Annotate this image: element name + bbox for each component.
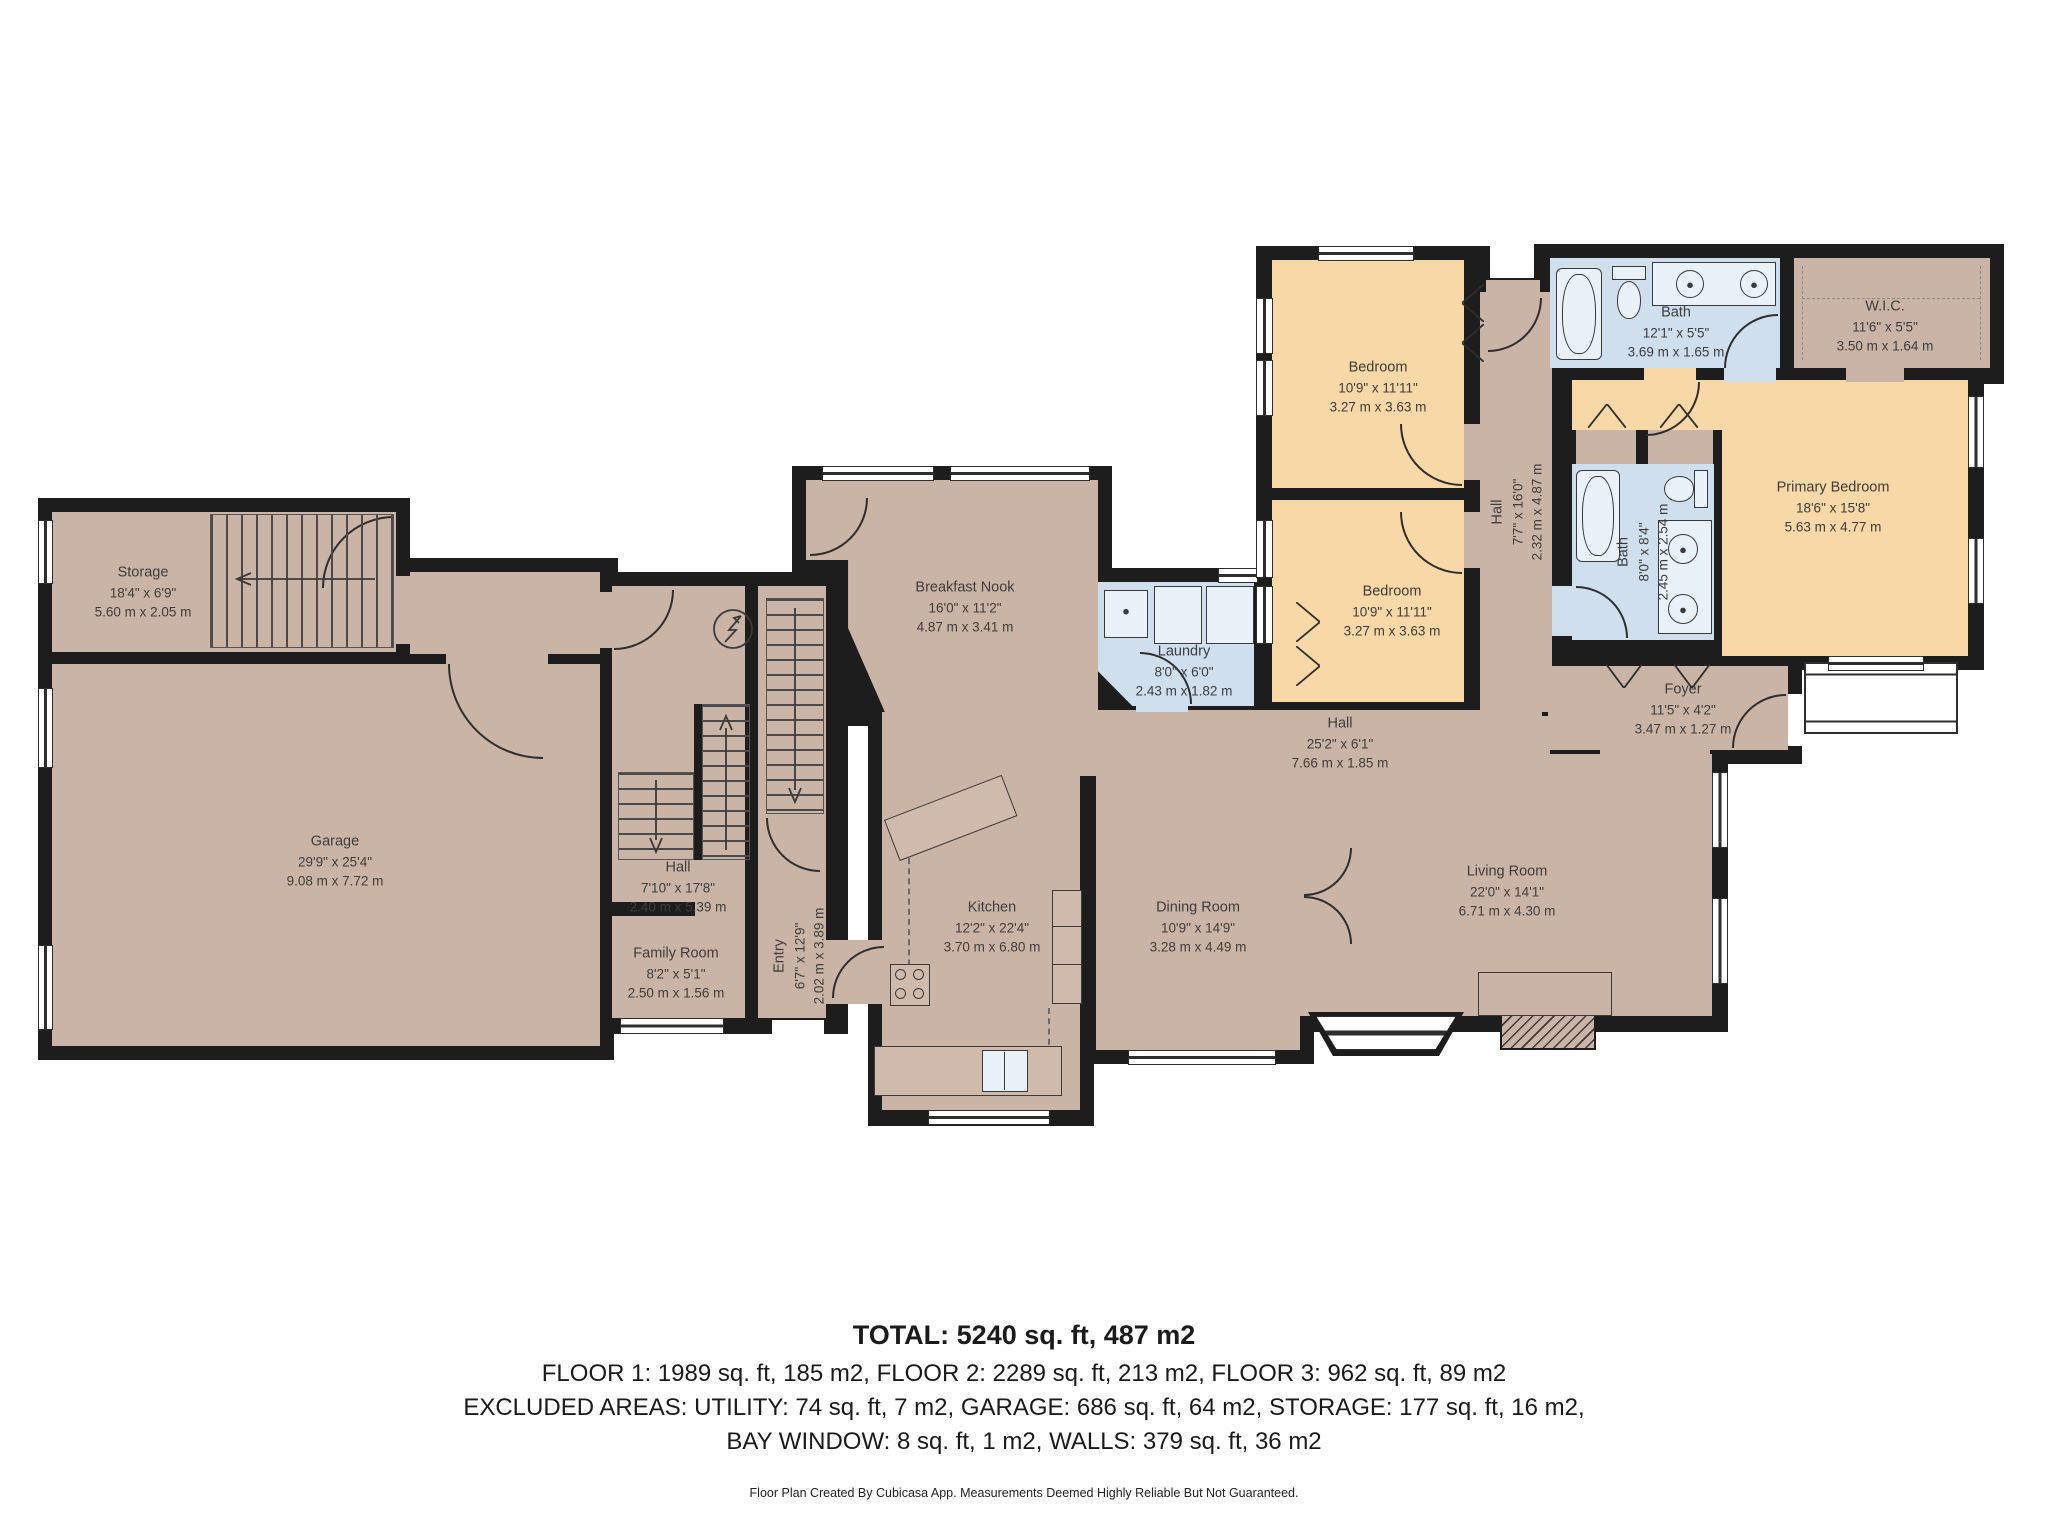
opening-kitchen-corridor bbox=[1066, 716, 1080, 770]
label-entry: Entry 6'7" x 12'9" 2.02 m x 3.89 m bbox=[771, 908, 828, 1005]
bathtub-primary bbox=[1576, 470, 1620, 562]
closet-chevron-primary-b bbox=[1660, 404, 1698, 428]
window-nook-top-2 bbox=[950, 466, 1090, 481]
area-summary: TOTAL: 5240 sq. ft, 487 m2 FLOOR 1: 1989… bbox=[0, 1320, 2048, 1462]
label-bath-main: Bath 12'1" x 5'5" 3.69 m x 1.65 m bbox=[1628, 304, 1725, 361]
fireplace-hearth bbox=[1478, 972, 1612, 1016]
window-bedroom1-left-2 bbox=[1256, 360, 1273, 416]
window-primary-right-2 bbox=[1968, 538, 1984, 604]
closet-chevron-bedroom2-b bbox=[1296, 646, 1320, 686]
label-bedroom-2: Bedroom 10'9" x 11'11" 3.27 m x 3.63 m bbox=[1344, 583, 1441, 640]
toilet-bowl-primary bbox=[1664, 476, 1694, 502]
opening-entry-exterior bbox=[772, 1020, 824, 1034]
opening-bedroom1-door bbox=[1464, 424, 1480, 480]
opening-foyer-living bbox=[1600, 748, 1710, 758]
label-storage: Storage 18'4" x 6'9" 5.60 m x 2.05 m bbox=[95, 564, 192, 621]
opening-bath-primary-door bbox=[1552, 586, 1574, 636]
laundry-sink bbox=[1104, 590, 1148, 638]
label-breakfast-nook: Breakfast Nook 16'0" x 11'2" 4.87 m x 3.… bbox=[915, 579, 1014, 636]
window-kitchen-bottom bbox=[928, 1110, 1050, 1125]
pantry-line-2 bbox=[1052, 964, 1082, 965]
stairs-hall-down-arrow bbox=[648, 778, 664, 856]
bathtub-main bbox=[1556, 268, 1602, 360]
compass-icon bbox=[712, 608, 754, 650]
wic-dash-left bbox=[1802, 266, 1803, 360]
closet-chevron-primary-a bbox=[1588, 404, 1626, 428]
kitchen-sink bbox=[982, 1050, 1028, 1092]
label-bath-primary: Bath 8'0" x 8'4" 2.45 m x 2.54 m bbox=[1615, 504, 1672, 601]
toilet-tank-primary bbox=[1694, 470, 1708, 508]
label-hall-main: Hall 25'2" x 6'1" 7.66 m x 1.85 m bbox=[1292, 715, 1389, 772]
label-garage: Garage 29'9" x 25'4" 9.08 m x 7.72 m bbox=[287, 833, 384, 890]
front-porch bbox=[1804, 662, 1958, 734]
burner-3 bbox=[895, 988, 906, 999]
label-dining: Dining Room 10'9" x 14'9" 3.28 m x 4.49 … bbox=[1150, 899, 1247, 956]
window-living-right-1 bbox=[1712, 772, 1728, 848]
opening-corridor-foyer bbox=[1530, 716, 1550, 770]
opening-storage-vestibule bbox=[396, 576, 412, 644]
toilet-tank-main bbox=[1612, 266, 1646, 280]
label-primary: Primary Bedroom 18'6" x 15'8" 5.63 m x 4… bbox=[1777, 479, 1890, 536]
window-primary-right-1 bbox=[1968, 396, 1984, 468]
summary-total: TOTAL: 5240 sq. ft, 487 m2 bbox=[0, 1320, 2048, 1351]
opening-primary-door bbox=[1644, 368, 1696, 382]
summary-excluded-1: EXCLUDED AREAS: UTILITY: 74 sq. ft, 7 m2… bbox=[0, 1394, 2048, 1422]
wic-dash-right bbox=[1980, 266, 1981, 360]
window-bedroom2-left-1 bbox=[1256, 520, 1273, 578]
label-hall-upper: Hall 7'7" x 16'0" 2.32 m x 4.87 m bbox=[1489, 464, 1546, 561]
label-bedroom-1: Bedroom 10'9" x 11'11" 3.27 m x 3.63 m bbox=[1330, 359, 1427, 416]
closet-chevron-bedroom1-b bbox=[1462, 324, 1484, 362]
pantry-line-1 bbox=[1052, 926, 1082, 927]
opening-hall-upper-top bbox=[1486, 280, 1540, 294]
opening-corridor-hall-upper bbox=[1486, 698, 1542, 712]
opening-corridor-dining bbox=[1102, 758, 1288, 774]
window-garage-left-1 bbox=[38, 688, 53, 768]
window-garage-left-2 bbox=[38, 945, 53, 1030]
window-family-bottom bbox=[620, 1018, 724, 1034]
closet-chevron-bedroom1-a bbox=[1462, 284, 1484, 322]
label-kitchen: Kitchen 12'2" x 22'4" 3.70 m x 6.80 m bbox=[944, 899, 1041, 956]
stairs-hall-up-arrow bbox=[718, 712, 734, 852]
window-dining-bottom bbox=[1128, 1050, 1276, 1065]
window-laundry-top bbox=[1218, 568, 1258, 583]
window-primary-bottom bbox=[1828, 656, 1924, 671]
dryer bbox=[1206, 586, 1254, 644]
label-hall-left: Hall 7'10" x 17'8" 2.40 m x 5.39 m bbox=[630, 859, 727, 916]
wall-stair-divider bbox=[694, 704, 702, 860]
disclaimer-text: Floor Plan Created By Cubicasa App. Meas… bbox=[0, 1486, 2048, 1500]
stairs-storage-arrow bbox=[225, 570, 381, 588]
burner-1 bbox=[895, 969, 906, 980]
kitchen-pantry-stack bbox=[1052, 890, 1082, 1004]
floor-plan-page: Storage 18'4" x 6'9" 5.60 m x 2.05 m Gar… bbox=[0, 0, 2048, 1536]
kitchen-sink-divider bbox=[1004, 1052, 1005, 1090]
window-storage-left bbox=[38, 520, 53, 584]
opening-wic-door bbox=[1846, 368, 1904, 382]
summary-excluded-2: BAY WINDOW: 8 sq. ft, 1 m2, WALLS: 379 s… bbox=[0, 1428, 2048, 1456]
opening-front-door bbox=[1788, 694, 1804, 746]
room-vestibule bbox=[410, 572, 600, 654]
window-bedroom2-left-2 bbox=[1256, 586, 1273, 644]
opening-nook-kitchen bbox=[886, 700, 1076, 714]
washer bbox=[1154, 586, 1202, 644]
summary-floors: FLOOR 1: 1989 sq. ft, 185 m2, FLOOR 2: 2… bbox=[0, 1360, 2048, 1388]
sink-main-1 bbox=[1676, 270, 1704, 298]
kitchen-counter-bottom bbox=[874, 1046, 1062, 1096]
label-family: Family Room 8'2" x 5'1" 2.50 m x 1.56 m bbox=[628, 945, 725, 1002]
closet-chevron-bedroom2-a bbox=[1296, 602, 1320, 642]
opening-vestibule-hall bbox=[596, 592, 616, 648]
label-wic: W.I.C. 11'6" x 5'5" 3.50 m x 1.64 m bbox=[1837, 298, 1934, 355]
fireplace-chimney bbox=[1500, 1014, 1596, 1050]
opening-bath-main-door bbox=[1724, 368, 1776, 382]
sink-main-2 bbox=[1740, 270, 1768, 298]
window-bedroom1-left-1 bbox=[1256, 298, 1273, 354]
window-living-right-2 bbox=[1712, 898, 1728, 984]
bay-window-glass bbox=[1316, 1016, 1456, 1050]
burner-2 bbox=[913, 969, 924, 980]
label-foyer: Foyer 11'5" x 4'2" 3.47 m x 1.27 m bbox=[1635, 681, 1732, 738]
label-living: Living Room 22'0" x 14'1" 6.71 m x 4.30 … bbox=[1459, 863, 1556, 920]
opening-bedroom2-door bbox=[1464, 512, 1480, 568]
label-laundry: Laundry 8'0" x 6'0" 2.43 m x 1.82 m bbox=[1136, 643, 1233, 700]
window-bedroom1-top bbox=[1318, 246, 1414, 261]
burner-4 bbox=[913, 988, 924, 999]
stairs-entry-arrow bbox=[787, 606, 803, 806]
window-nook-top-1 bbox=[822, 466, 934, 481]
